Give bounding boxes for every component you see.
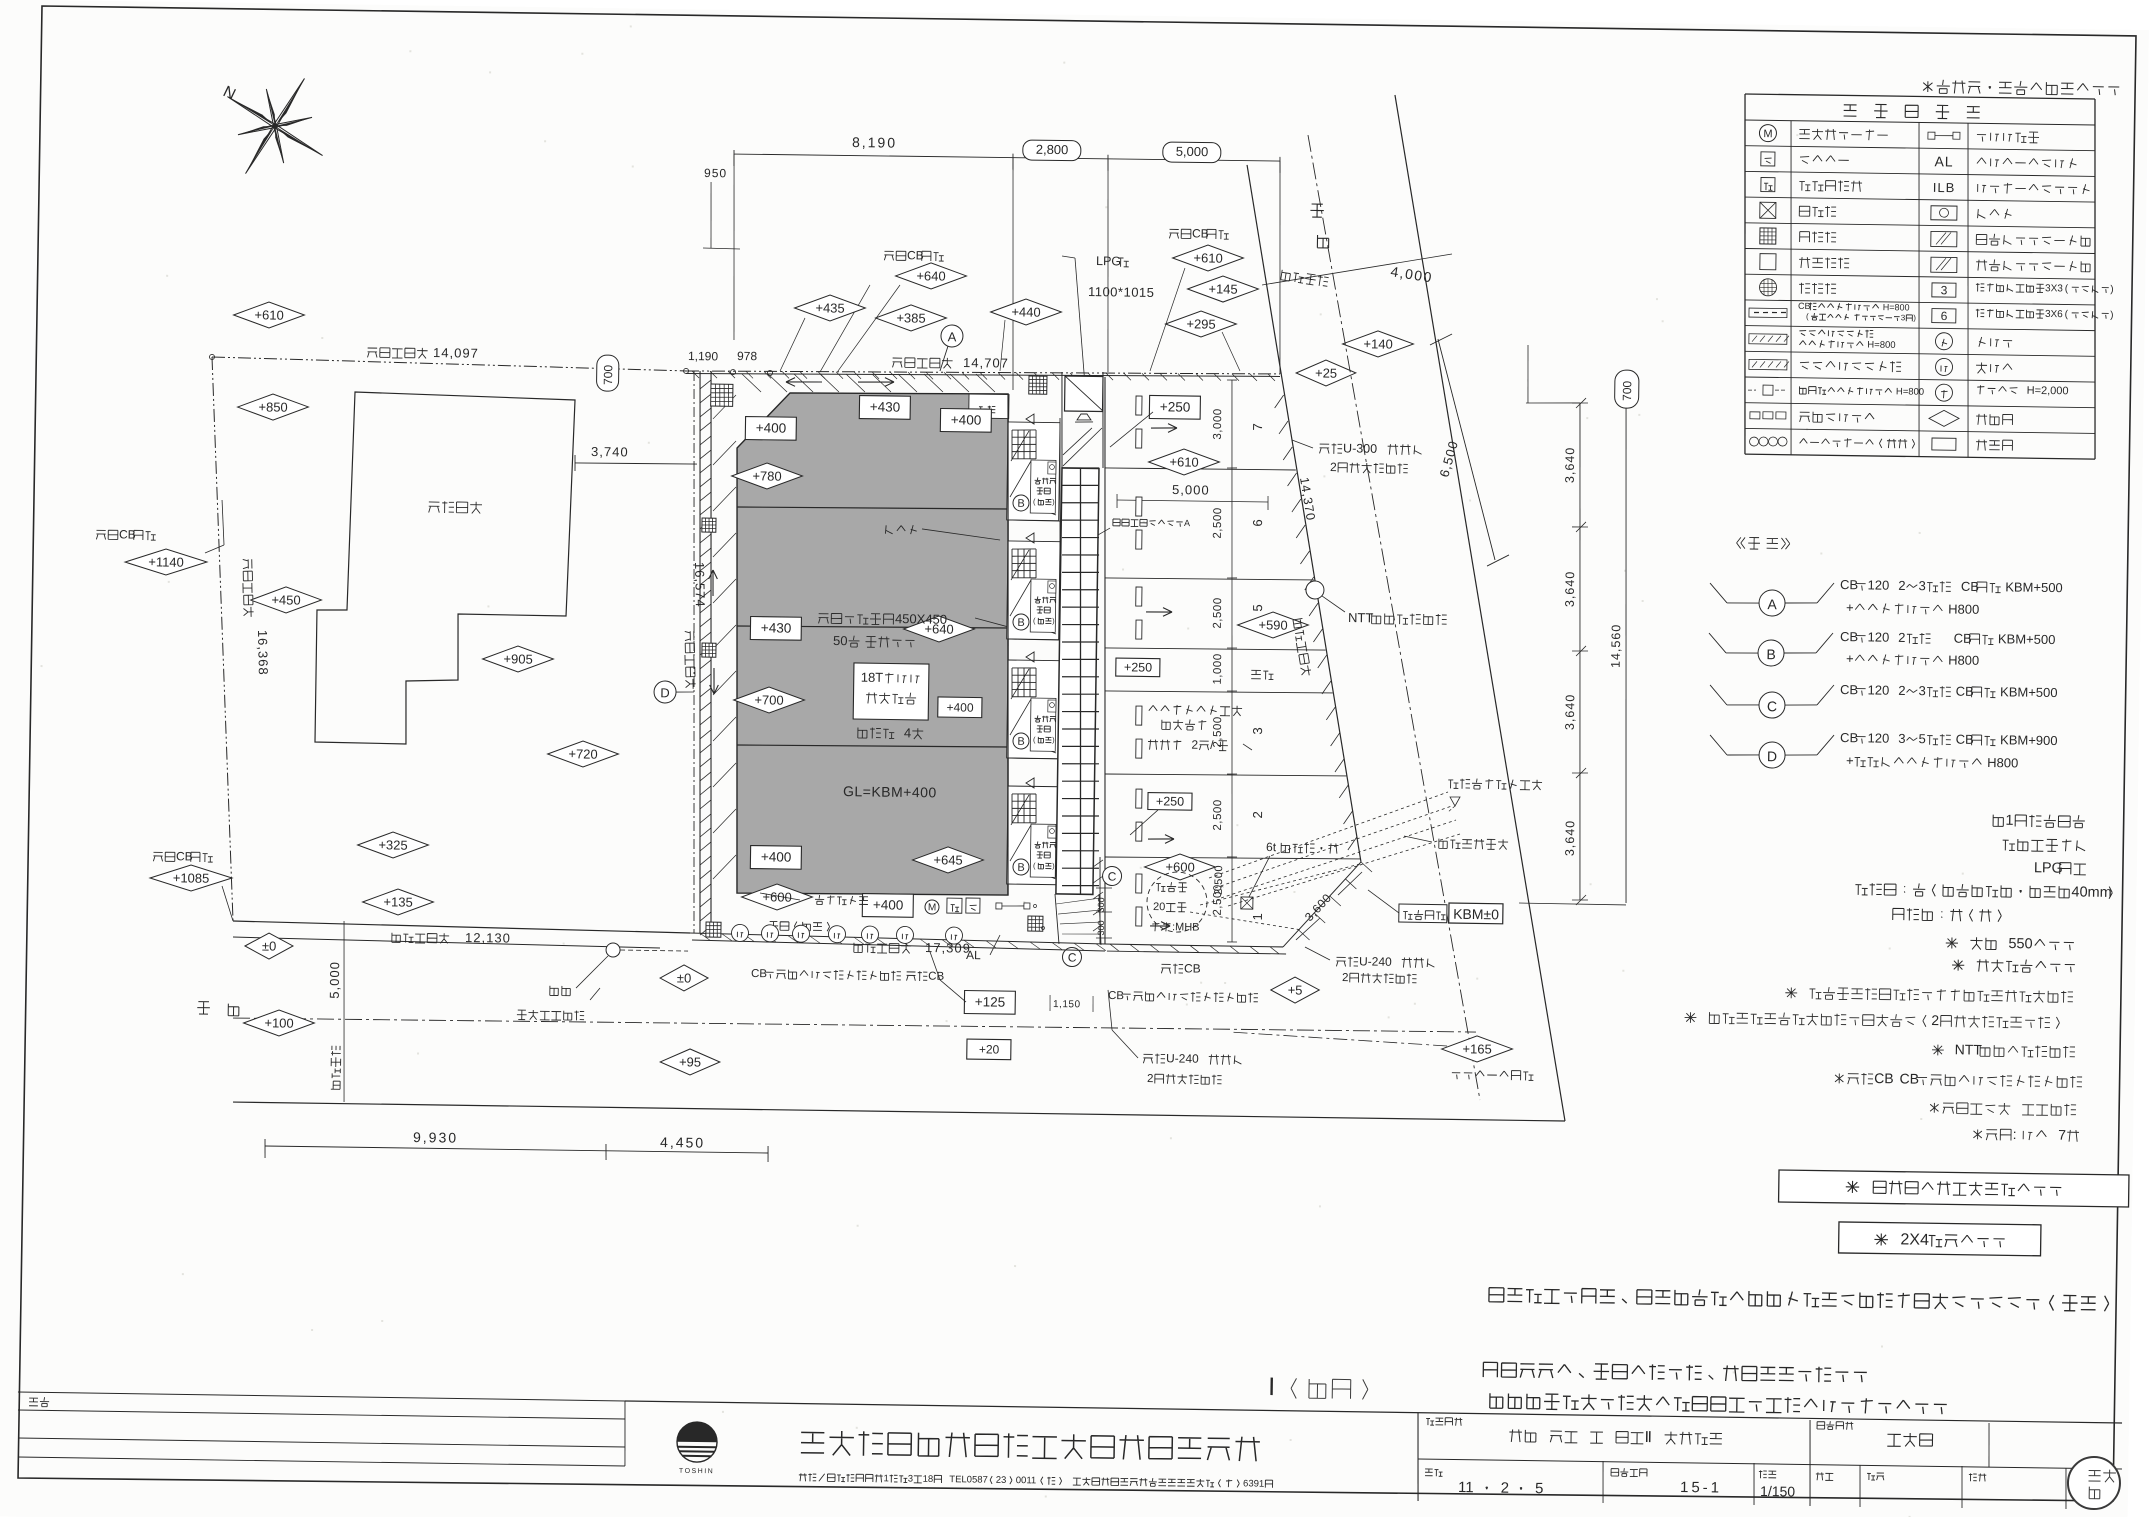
svg-text:+400: +400	[756, 420, 787, 435]
svg-text:2: 2	[1898, 630, 1905, 645]
svg-text:1100*1015: 1100*1015	[1088, 284, 1155, 300]
svg-text:120: 120	[1867, 682, 1889, 697]
svg-text:+600: +600	[762, 889, 792, 904]
svg-text:3,640: 3,640	[1563, 571, 1578, 607]
svg-text:B: B	[1017, 862, 1025, 874]
svg-text:GL=KBM+400: GL=KBM+400	[843, 783, 937, 800]
svg-text:+600: +600	[1165, 859, 1195, 874]
svg-text:): )	[2110, 284, 2114, 295]
svg-text:+850: +850	[258, 399, 288, 414]
svg-text:+590: +590	[1258, 617, 1288, 632]
svg-text:1: 1	[1250, 913, 1265, 920]
svg-text:+295: +295	[1186, 316, 1216, 331]
svg-text:KBM+500: KBM+500	[1998, 631, 2056, 647]
svg-text:15-1: 15-1	[1680, 1479, 1722, 1497]
svg-text:A: A	[1767, 596, 1777, 612]
svg-text:5,000: 5,000	[1176, 144, 1209, 159]
svg-text:3,640: 3,640	[1563, 694, 1578, 730]
svg-text:+435: +435	[815, 300, 845, 315]
svg-text:NTT: NTT	[1955, 1041, 1983, 1057]
svg-text:5: 5	[1535, 1480, 1544, 1497]
svg-text:+610: +610	[254, 307, 284, 322]
svg-text:6t: 6t	[1266, 840, 1277, 854]
svg-text:950: 950	[704, 166, 727, 180]
svg-text:2: 2	[1147, 1073, 1154, 1085]
svg-text:CB: CB	[1184, 961, 1201, 975]
svg-text:+400: +400	[873, 897, 904, 912]
svg-text:AL: AL	[966, 948, 981, 962]
svg-text:3: 3	[1250, 727, 1265, 734]
svg-text:+430: +430	[870, 399, 901, 414]
svg-text:2: 2	[1501, 1480, 1510, 1497]
svg-text:H800: H800	[1948, 601, 1979, 616]
svg-text:12,130: 12,130	[465, 930, 511, 946]
svg-text:18T: 18T	[861, 670, 884, 685]
svg-text:CB: CB	[176, 849, 193, 863]
svg-text:+1140: +1140	[148, 554, 184, 570]
svg-text:(: (	[1806, 312, 1809, 321]
svg-text::: :	[2013, 1126, 2017, 1142]
svg-text:CB: CB	[1798, 301, 1811, 311]
svg-text:M: M	[1763, 128, 1772, 140]
svg-text:16,574: 16,574	[692, 562, 708, 608]
svg-text:): )	[2110, 310, 2114, 321]
svg-text:5,000: 5,000	[1172, 482, 1210, 498]
svg-text:14,560: 14,560	[1609, 624, 1624, 668]
svg-text:M: M	[928, 902, 937, 913]
svg-text:H=800: H=800	[1867, 340, 1895, 351]
svg-text:+1085: +1085	[173, 870, 210, 886]
svg-text:4,450: 4,450	[660, 1134, 705, 1151]
svg-text:B: B	[1017, 736, 1025, 748]
svg-text:B: B	[1766, 646, 1776, 662]
svg-text:KBM+900: KBM+900	[2000, 732, 2058, 748]
svg-text:D: D	[660, 685, 670, 700]
svg-text:+440: +440	[1011, 304, 1041, 319]
svg-text:+720: +720	[568, 746, 598, 761]
svg-text:+: +	[1846, 651, 1854, 666]
svg-text:TOSHIN: TOSHIN	[679, 1468, 714, 1476]
svg-text:TEL0587: TEL0587	[949, 1474, 988, 1486]
svg-text:±0: ±0	[677, 970, 692, 985]
svg-text:300: 300	[1096, 897, 1106, 912]
svg-text:+: +	[1846, 753, 1854, 768]
svg-text:+325: +325	[378, 837, 408, 852]
svg-text:120: 120	[1867, 577, 1889, 592]
svg-text:NTT: NTT	[1348, 610, 1374, 625]
svg-text:7: 7	[1250, 423, 1265, 430]
svg-text:6: 6	[1250, 519, 1265, 526]
svg-text:+610: +610	[1169, 454, 1199, 469]
svg-text:16,368: 16,368	[255, 630, 271, 676]
svg-text:11: 11	[1458, 1479, 1474, 1496]
svg-text:+95: +95	[679, 1054, 701, 1069]
svg-text:23: 23	[996, 1475, 1007, 1486]
svg-text:A: A	[948, 329, 957, 344]
svg-text:2: 2	[1250, 811, 1265, 818]
svg-text:U-300: U-300	[1343, 441, 1377, 455]
svg-text:3: 3	[1941, 283, 1948, 297]
svg-text:B: B	[1017, 498, 1025, 510]
svg-text:KBM+500: KBM+500	[2005, 579, 2063, 595]
svg-text:+165: +165	[1462, 1041, 1492, 1056]
svg-text:1,190: 1,190	[688, 349, 719, 363]
svg-text:+610: +610	[1193, 250, 1223, 265]
svg-text:): )	[1913, 313, 1916, 322]
svg-text:Ⅱ: Ⅱ	[1644, 1429, 1652, 1446]
svg-text:+145: +145	[1208, 281, 1238, 296]
svg-text:1: 1	[2005, 813, 2013, 829]
svg-text:+430: +430	[761, 620, 792, 635]
svg-text:3X6: 3X6	[2045, 309, 2063, 320]
svg-text:1/150: 1/150	[1760, 1483, 1795, 1500]
svg-text:CB: CB	[1840, 577, 1858, 592]
svg-text:+25: +25	[1315, 365, 1337, 380]
svg-text:700: 700	[1620, 380, 1634, 401]
svg-text:14,097: 14,097	[433, 345, 479, 361]
svg-text:+645: +645	[933, 852, 963, 867]
svg-text:2,500: 2,500	[1212, 507, 1224, 538]
svg-text:+780: +780	[752, 468, 782, 483]
svg-text:5,000: 5,000	[327, 961, 343, 999]
svg-text:A: A	[1184, 518, 1190, 528]
svg-text:+450: +450	[271, 592, 301, 607]
svg-text:CB: CB	[1840, 629, 1858, 644]
svg-text:700: 700	[601, 364, 615, 385]
svg-text:H=800: H=800	[1883, 302, 1910, 312]
svg-text:2: 2	[1342, 972, 1349, 984]
svg-text:U-240: U-240	[1166, 1051, 1199, 1065]
svg-text:2: 2	[1898, 578, 1905, 593]
svg-text:1: 1	[883, 1473, 888, 1484]
svg-text:CB: CB	[928, 971, 944, 983]
svg-text:CB: CB	[119, 527, 136, 541]
svg-text:LPG: LPG	[2034, 860, 2063, 876]
svg-text:+140: +140	[1363, 336, 1393, 351]
svg-text:6391: 6391	[1243, 1478, 1264, 1489]
svg-text:120: 120	[1867, 629, 1889, 644]
svg-text:+250: +250	[1124, 660, 1152, 674]
svg-text:H=800: H=800	[1896, 386, 1924, 397]
svg-text:D: D	[1767, 748, 1777, 764]
svg-text:978: 978	[737, 349, 758, 363]
svg-text:+700: +700	[754, 692, 784, 707]
svg-text:CB: CB	[1840, 682, 1858, 697]
svg-text:+250: +250	[1160, 399, 1191, 414]
svg-text:40mm: 40mm	[2071, 884, 2112, 901]
svg-text:2,500: 2,500	[1213, 865, 1225, 895]
svg-text:CB: CB	[1899, 1070, 1919, 1086]
svg-text:CB: CB	[1840, 730, 1858, 745]
svg-text:CB: CB	[1961, 579, 1979, 594]
svg-text:U-240: U-240	[1359, 954, 1392, 968]
svg-text:2,500: 2,500	[1212, 597, 1224, 628]
svg-text:CB: CB	[1108, 990, 1124, 1002]
svg-text:KBM±0: KBM±0	[1453, 906, 1499, 923]
svg-text:3,640: 3,640	[1563, 820, 1578, 856]
svg-text:+400: +400	[946, 700, 974, 714]
svg-text:2,800: 2,800	[1036, 142, 1069, 157]
svg-text:LPG: LPG	[1096, 254, 1121, 268]
svg-text:H800: H800	[1987, 755, 2018, 770]
svg-text:+20: +20	[979, 1042, 1000, 1056]
svg-text:±0: ±0	[262, 938, 277, 953]
svg-text:9,930: 9,930	[413, 1129, 458, 1146]
svg-text:+400: +400	[761, 849, 792, 864]
svg-text:3,000: 3,000	[1212, 408, 1224, 439]
svg-text:+400: +400	[951, 412, 982, 427]
svg-text:18: 18	[923, 1474, 934, 1485]
svg-text:CB: CB	[1874, 1070, 1894, 1086]
svg-text:0011: 0011	[1016, 1475, 1037, 1486]
svg-text:5: 5	[1250, 604, 1265, 611]
svg-text:2: 2	[1191, 738, 1198, 752]
svg-text:6: 6	[1941, 309, 1948, 323]
svg-text:C: C	[1068, 950, 1077, 964]
svg-text:550: 550	[2008, 936, 2032, 952]
svg-text:50: 50	[833, 633, 848, 648]
svg-text:300: 300	[1096, 920, 1106, 935]
svg-text:2: 2	[1898, 683, 1905, 698]
svg-text:5: 5	[1919, 731, 1926, 746]
svg-text:3X3: 3X3	[2045, 283, 2063, 294]
svg-text:3,740: 3,740	[591, 444, 629, 460]
svg-text:KBM+500: KBM+500	[2000, 684, 2058, 700]
svg-text:B: B	[1017, 617, 1025, 629]
svg-text:C: C	[1767, 698, 1777, 714]
svg-text:1,000: 1,000	[1212, 653, 1224, 684]
svg-text:+: +	[1846, 600, 1854, 615]
svg-text:+385: +385	[896, 310, 926, 325]
svg-text:CB: CB	[1192, 226, 1209, 240]
svg-text:+125: +125	[975, 994, 1006, 1009]
svg-text:CB: CB	[751, 968, 767, 980]
svg-text:3: 3	[1901, 313, 1906, 322]
svg-text:450X450: 450X450	[895, 611, 947, 627]
svg-text:ILB: ILB	[1933, 180, 1956, 195]
svg-text:7: 7	[2058, 1127, 2066, 1143]
svg-text:2: 2	[1330, 460, 1337, 474]
svg-text:17,309: 17,309	[925, 940, 971, 956]
svg-text:+5: +5	[1288, 982, 1303, 997]
svg-text:20: 20	[1153, 901, 1165, 913]
svg-text:3: 3	[908, 1474, 913, 1485]
svg-text:+100: +100	[264, 1015, 294, 1030]
svg-text:+135: +135	[383, 894, 413, 909]
svg-text:H800: H800	[1948, 652, 1979, 667]
svg-text:CB: CB	[1956, 684, 1974, 699]
svg-text:C: C	[1108, 870, 1117, 884]
svg-text:Ⅰ: Ⅰ	[1268, 1374, 1275, 1401]
svg-text:CB: CB	[1954, 631, 1972, 646]
svg-text:H=2,000: H=2,000	[2027, 385, 2069, 398]
svg-text:2,500: 2,500	[1212, 799, 1224, 830]
svg-text:2X4: 2X4	[1900, 1231, 1929, 1248]
svg-text:+250: +250	[1156, 794, 1184, 808]
svg-text::MHB: :MHB	[1172, 921, 1200, 933]
svg-text:1,150: 1,150	[1053, 999, 1081, 1010]
svg-text:120: 120	[1868, 730, 1890, 745]
svg-text:AL: AL	[1934, 153, 1953, 169]
svg-text:3: 3	[1918, 578, 1925, 593]
svg-text:CB: CB	[1956, 732, 1974, 747]
svg-text:+640: +640	[916, 268, 946, 283]
svg-text:4: 4	[904, 725, 911, 740]
svg-text:2: 2	[1931, 1012, 1939, 1028]
svg-text:3: 3	[1918, 683, 1925, 698]
svg-text:CB: CB	[907, 248, 924, 262]
svg-text:3,640: 3,640	[1563, 447, 1578, 483]
svg-text:8,190: 8,190	[852, 134, 897, 151]
svg-text:14,707: 14,707	[963, 355, 1009, 371]
svg-text:+905: +905	[503, 651, 533, 666]
svg-text:3: 3	[1898, 731, 1905, 746]
